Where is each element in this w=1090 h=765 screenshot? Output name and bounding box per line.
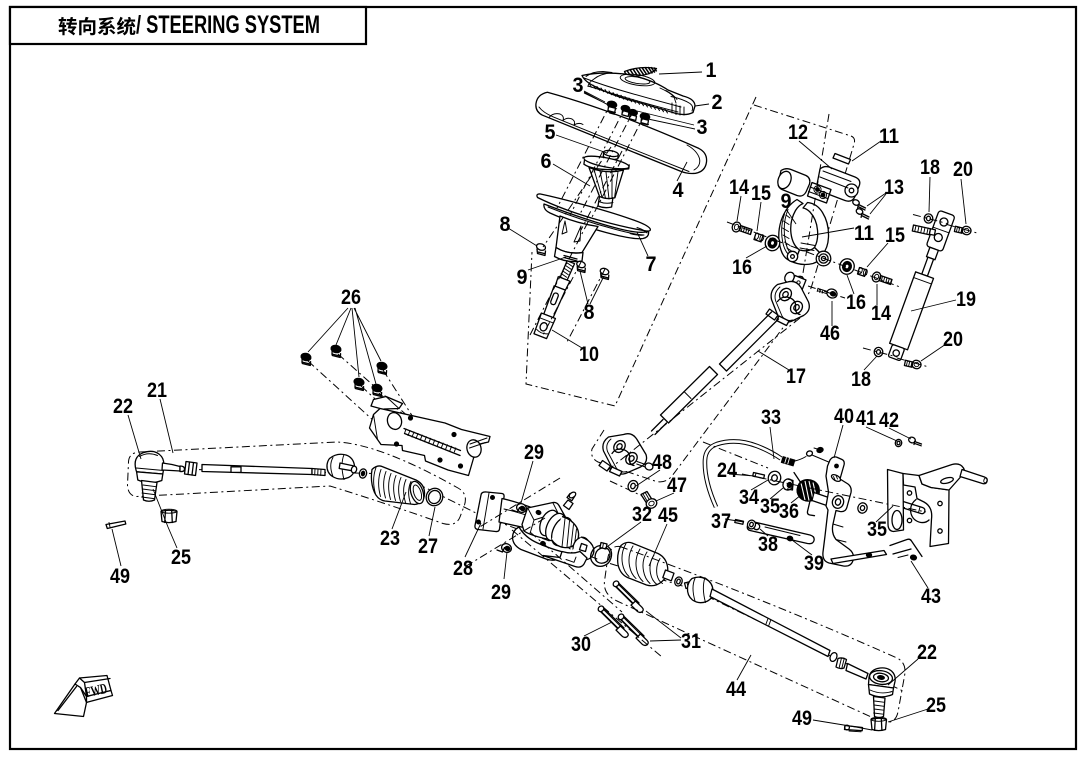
svg-text:35: 35	[760, 495, 780, 518]
svg-text:25: 25	[926, 694, 946, 717]
svg-text:16: 16	[732, 256, 752, 279]
svg-text:41: 41	[856, 407, 876, 430]
svg-text:15: 15	[751, 182, 771, 205]
svg-text:48: 48	[652, 451, 672, 474]
svg-text:25: 25	[171, 546, 191, 569]
svg-text:36: 36	[779, 500, 799, 523]
svg-text:29: 29	[524, 441, 544, 464]
svg-text:18: 18	[920, 156, 940, 179]
svg-text:20: 20	[943, 328, 963, 351]
svg-text:49: 49	[110, 565, 130, 588]
svg-text:44: 44	[726, 678, 746, 701]
svg-text:32: 32	[632, 503, 652, 526]
svg-text:21: 21	[147, 379, 167, 402]
svg-text:38: 38	[758, 533, 778, 556]
svg-text:28: 28	[453, 557, 473, 580]
svg-text:10: 10	[579, 343, 599, 366]
svg-text:45: 45	[658, 504, 678, 527]
svg-text:1: 1	[706, 59, 717, 82]
svg-text:34: 34	[739, 486, 759, 509]
svg-text:22: 22	[917, 641, 937, 664]
svg-text:26: 26	[341, 286, 361, 309]
svg-text:24: 24	[717, 459, 737, 482]
svg-text:18: 18	[851, 368, 871, 391]
svg-text:20: 20	[953, 158, 973, 181]
svg-text:43: 43	[921, 585, 941, 608]
svg-text:3: 3	[697, 116, 708, 139]
svg-text:11: 11	[854, 222, 874, 245]
svg-text:29: 29	[491, 581, 511, 604]
svg-text:13: 13	[884, 176, 904, 199]
svg-text:/ STEERING SYSTEM: / STEERING SYSTEM	[136, 11, 320, 39]
svg-text:14: 14	[729, 176, 749, 199]
svg-text:33: 33	[761, 406, 781, 429]
svg-text:4: 4	[673, 179, 684, 202]
svg-text:37: 37	[711, 510, 731, 533]
svg-text:23: 23	[380, 527, 400, 550]
svg-text:47: 47	[667, 474, 687, 497]
svg-text:3: 3	[573, 74, 584, 97]
svg-text:22: 22	[113, 395, 133, 418]
svg-text:8: 8	[500, 213, 511, 236]
svg-text:30: 30	[571, 633, 591, 656]
svg-text:8: 8	[584, 301, 595, 324]
svg-text:40: 40	[834, 405, 854, 428]
svg-text:5: 5	[545, 121, 556, 144]
svg-text:35: 35	[867, 518, 887, 541]
svg-text:7: 7	[646, 253, 657, 276]
svg-text:14: 14	[871, 302, 891, 325]
svg-text:39: 39	[804, 552, 824, 575]
svg-text:9: 9	[517, 266, 528, 289]
svg-text:12: 12	[788, 121, 808, 144]
svg-text:9: 9	[781, 190, 792, 213]
svg-text:2: 2	[712, 91, 723, 114]
svg-text:42: 42	[879, 409, 899, 432]
svg-text:15: 15	[885, 224, 905, 247]
svg-text:27: 27	[418, 535, 438, 558]
svg-text:17: 17	[786, 365, 806, 388]
svg-text:31: 31	[681, 630, 701, 653]
svg-text:11: 11	[879, 125, 899, 148]
svg-text:49: 49	[792, 707, 812, 730]
svg-text:16: 16	[846, 291, 866, 314]
svg-text:19: 19	[956, 288, 976, 311]
svg-text:6: 6	[541, 150, 552, 173]
svg-text:46: 46	[820, 322, 840, 345]
